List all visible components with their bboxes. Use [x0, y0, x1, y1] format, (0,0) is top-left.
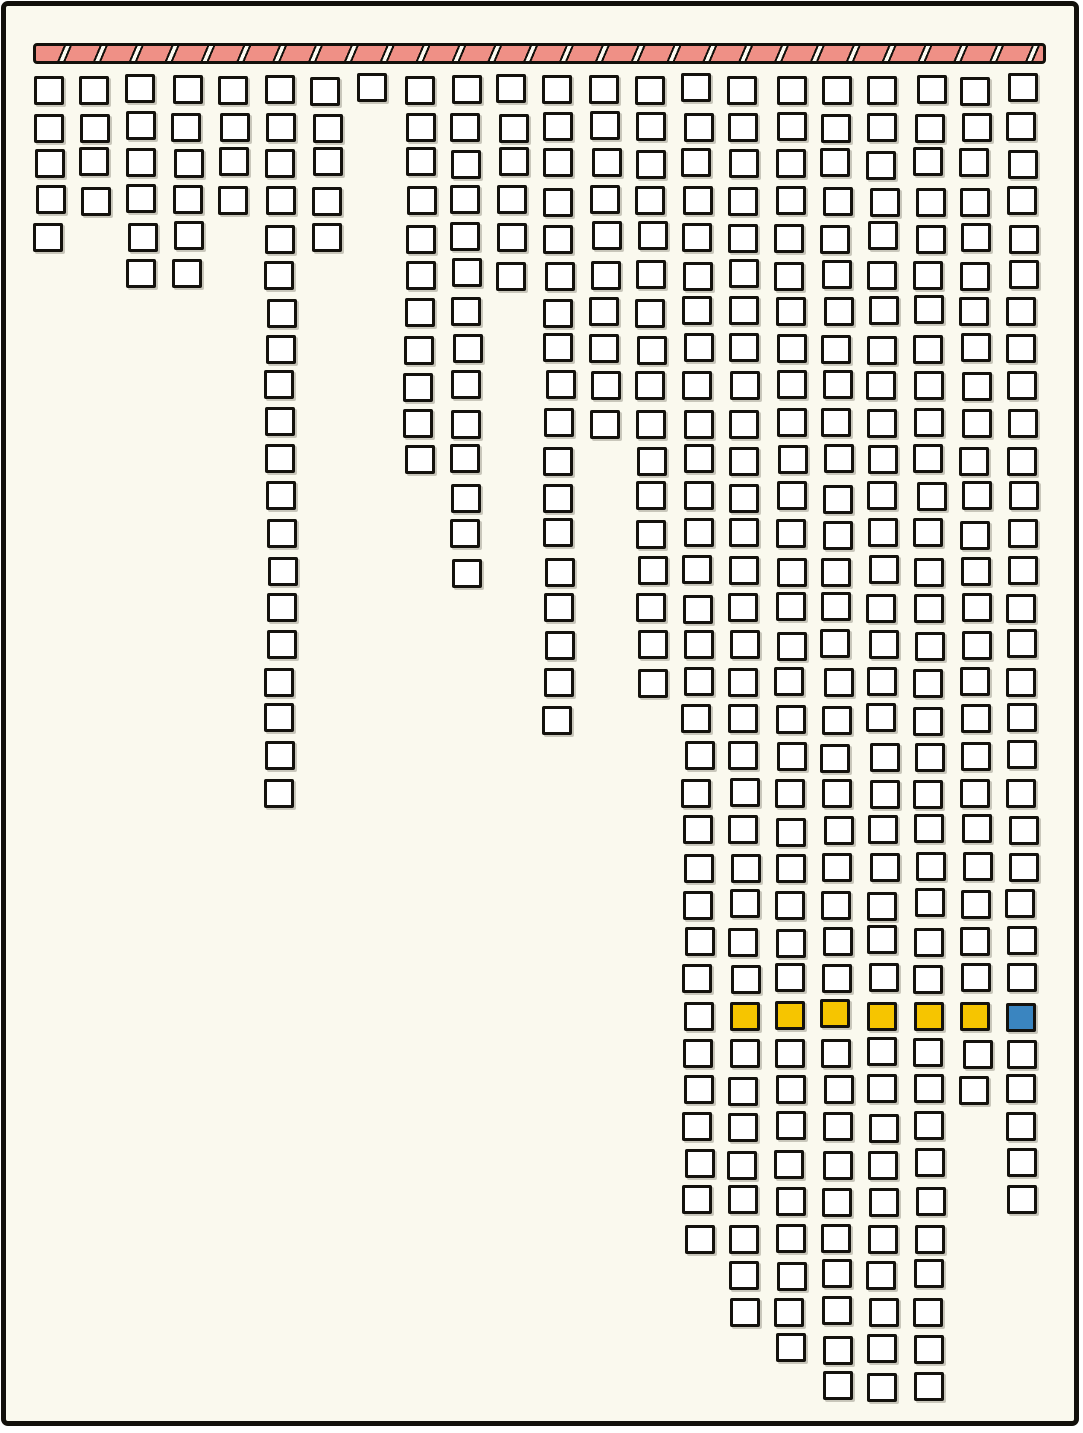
grid-cell: [867, 336, 897, 365]
grid-cell: [453, 334, 483, 363]
grid-cell: [1007, 186, 1037, 215]
grid-cell: [265, 225, 295, 254]
grid-cell: [264, 261, 294, 290]
grid-cell: [914, 1259, 944, 1288]
grid-cell: [824, 668, 854, 697]
grid-cell: [499, 147, 529, 176]
grid-cell: [823, 1336, 853, 1365]
grid-cell: [727, 76, 757, 105]
grid-cell: [776, 1187, 806, 1216]
grid-cell: [728, 815, 758, 844]
grid-cell: [452, 559, 482, 588]
grid-cell: [823, 485, 853, 514]
grid-cell: [684, 410, 714, 439]
grid-cell: [913, 707, 943, 736]
grid-cell: [821, 1039, 851, 1068]
grid-cell: [591, 371, 621, 400]
grid-cell: [960, 77, 990, 106]
grid-cell: [823, 370, 853, 399]
grid-cell: [960, 667, 990, 696]
grid-cell: [776, 1111, 806, 1140]
grid-cell: [682, 371, 712, 400]
grid-cell: [174, 221, 204, 250]
grid-cell: [822, 76, 852, 105]
grid-cell: [589, 75, 619, 104]
grid-cell: [821, 408, 851, 437]
grid-cell: [591, 261, 621, 290]
grid-cell: [728, 1113, 758, 1142]
grid-cell: [959, 447, 989, 476]
grid-cell: [313, 114, 343, 143]
grid-cell: [776, 705, 806, 734]
grid-cell: [685, 1225, 715, 1254]
grid-cell: [637, 447, 667, 476]
grid-cell: [635, 76, 665, 105]
grid-cell: [1006, 594, 1036, 623]
grid-cell: [824, 444, 854, 473]
grid-cell: [960, 262, 990, 291]
grid-cell: [1008, 519, 1038, 548]
grid-cell: [636, 593, 666, 622]
grid-cell: [683, 262, 713, 291]
grid-cell: [684, 481, 714, 510]
grid-cell: [406, 113, 436, 142]
grid-cell: [264, 370, 294, 399]
grid-cell: [1005, 889, 1035, 918]
grid-cell: [914, 1335, 944, 1364]
grid-cell: [777, 742, 807, 771]
grid-cell: [729, 556, 759, 585]
grid-cell: [822, 1259, 852, 1288]
grid-cell: [915, 888, 945, 917]
grid-cell: [728, 1077, 758, 1106]
grid-cell: [821, 335, 851, 364]
grid-cell: [407, 186, 437, 215]
grid-cell: [1009, 481, 1039, 510]
grid-cell: [776, 297, 806, 326]
grid-cell: [451, 410, 481, 439]
grid-cell: [310, 77, 340, 106]
grid-cell: [914, 928, 944, 957]
grid-cell: [403, 409, 433, 438]
grid-cell: [126, 111, 156, 140]
grid-cell: [1006, 1112, 1036, 1141]
grid-cell: [451, 150, 481, 179]
grid-cell: [869, 1188, 899, 1217]
grid-cell: [729, 447, 759, 476]
grid-cell: [730, 778, 760, 807]
grid-cell: [822, 779, 852, 808]
grid-cell: [820, 225, 850, 254]
grid-cell: [961, 223, 991, 252]
grid-cell: [728, 668, 758, 697]
grid-cell: [959, 297, 989, 326]
grid-cell: [731, 965, 761, 994]
grid-cell: [774, 1298, 804, 1327]
grid-cell: [916, 852, 946, 881]
grid-cell: [913, 518, 943, 547]
grid-cell: [776, 592, 806, 621]
grid-cell: [728, 1185, 758, 1214]
grid-cell: [778, 445, 808, 474]
grid-cell: [728, 928, 758, 957]
grid-cell: [638, 630, 668, 659]
grid-cell: [683, 186, 713, 215]
grid-cell: [35, 149, 65, 178]
grid-cell: [868, 815, 898, 844]
grid-cell: [774, 667, 804, 696]
grid-cell: [543, 447, 573, 476]
grid-cell: [868, 221, 898, 250]
grid-cell: [543, 112, 573, 141]
grid-cell: [728, 741, 758, 770]
grid-cell: [961, 742, 991, 771]
grid-cell: [543, 333, 573, 362]
grid-cell: [684, 854, 714, 883]
grid-cell: [1008, 556, 1038, 585]
grid-cell: [822, 964, 852, 993]
grid-cell: [867, 1074, 897, 1103]
grid-cell: [867, 261, 897, 290]
grid-cell: [636, 481, 666, 510]
grid-cell: [450, 113, 480, 142]
grid-cell: [218, 76, 248, 105]
grid-cell: [403, 373, 433, 402]
grid-cell: [776, 1333, 806, 1362]
grid-cell: [1008, 150, 1038, 179]
grid-cell: [777, 558, 807, 587]
grid-cell: [914, 594, 944, 623]
grid-cell: [915, 632, 945, 661]
grid-cell: [777, 481, 807, 510]
grid-cell: [917, 75, 947, 104]
grid-cell: [219, 147, 249, 176]
grid-cell: [1006, 334, 1036, 363]
grid-cell: [869, 630, 899, 659]
grid-cell: [776, 519, 806, 548]
grid-cell: [545, 631, 575, 660]
grid-cell: [79, 147, 109, 176]
grid-cell: [868, 1151, 898, 1180]
grid-cell: [962, 481, 992, 510]
grid-cell: [683, 815, 713, 844]
grid-cell: [406, 261, 436, 290]
highlight-cell-yellow: [867, 1002, 897, 1031]
grid-cell: [870, 780, 900, 809]
grid-cell: [544, 668, 574, 697]
grid-cell: [822, 260, 852, 289]
grid-cell: [685, 927, 715, 956]
grid-cell: [867, 1037, 897, 1066]
grid-cell: [866, 703, 896, 732]
grid-cell: [775, 963, 805, 992]
grid-cell: [869, 296, 899, 325]
grid-cell: [914, 814, 944, 843]
grid-cell: [682, 1185, 712, 1214]
grid-cell: [638, 669, 668, 698]
grid-cell: [777, 112, 807, 141]
grid-cell: [545, 558, 575, 587]
grid-cell: [545, 262, 575, 291]
grid-cell: [1007, 1185, 1037, 1214]
grid-cell: [451, 484, 481, 513]
grid-cell: [913, 1298, 943, 1327]
grid-cell: [913, 261, 943, 290]
grid-cell: [592, 221, 622, 250]
grid-cell: [543, 225, 573, 254]
grid-cell: [914, 1372, 944, 1401]
grid-cell: [823, 521, 853, 550]
grid-cell: [866, 151, 896, 180]
grid-cell: [451, 370, 481, 399]
grid-cell: [961, 333, 991, 362]
grid-cell: [775, 891, 805, 920]
grid-cell: [542, 706, 572, 735]
grid-cell: [960, 779, 990, 808]
striped-header-bar: [33, 43, 1046, 64]
grid-cell: [450, 444, 480, 473]
grid-cell: [823, 1151, 853, 1180]
grid-cell: [821, 592, 851, 621]
grid-cell: [776, 1224, 806, 1253]
grid-cell: [913, 335, 943, 364]
grid-cell: [868, 518, 898, 547]
grid-cell: [821, 558, 851, 587]
grid-cell: [729, 1261, 759, 1290]
grid-cell: [682, 296, 712, 325]
grid-cell: [728, 187, 758, 216]
grid-cell: [776, 818, 806, 847]
grid-cell: [1007, 926, 1037, 955]
highlight-cell-blue: [1006, 1003, 1036, 1032]
grid-cell: [867, 667, 897, 696]
grid-cell: [870, 743, 900, 772]
grid-cell: [916, 188, 946, 217]
grid-cell: [636, 112, 666, 141]
grid-cell: [913, 147, 943, 176]
grid-cell: [405, 445, 435, 474]
grid-cell: [867, 892, 897, 921]
grid-cell: [264, 668, 294, 697]
grid-cell: [729, 484, 759, 513]
grid-cell: [914, 1074, 944, 1103]
grid-cell: [820, 629, 850, 658]
grid-cell: [868, 445, 898, 474]
grid-cell: [961, 963, 991, 992]
grid-cell: [450, 519, 480, 548]
grid-cell: [1006, 112, 1036, 141]
grid-cell: [684, 113, 714, 142]
grid-cell: [450, 185, 480, 214]
grid-cell: [452, 75, 482, 104]
grid-cell: [684, 630, 714, 659]
grid-cell: [913, 1038, 943, 1067]
grid-cell: [915, 1148, 945, 1177]
grid-cell: [824, 297, 854, 326]
grid-cell: [1007, 371, 1037, 400]
grid-cell: [636, 410, 666, 439]
grid-cell: [313, 147, 343, 176]
grid-cell: [496, 74, 526, 103]
grid-cell: [775, 1039, 805, 1068]
grid-cell: [821, 114, 851, 143]
grid-cell: [1009, 853, 1039, 882]
grid-cell: [916, 1187, 946, 1216]
grid-cell: [727, 1151, 757, 1180]
grid-cell: [264, 703, 294, 732]
grid-cell: [730, 1298, 760, 1327]
grid-cell: [820, 744, 850, 773]
grid-cell: [543, 148, 573, 177]
grid-cell: [913, 780, 943, 809]
grid-cell: [590, 410, 620, 439]
grid-cell: [914, 295, 944, 324]
grid-cell: [820, 148, 850, 177]
grid-cell: [33, 223, 63, 252]
grid-cell: [866, 594, 896, 623]
grid-cell: [867, 76, 897, 105]
grid-cell: [681, 148, 711, 177]
grid-cell: [1007, 1148, 1037, 1177]
grid-cell: [868, 1225, 898, 1254]
grid-cell: [824, 816, 854, 845]
grid-cell: [635, 371, 665, 400]
grid-cell: [776, 929, 806, 958]
grid-cell: [866, 1261, 896, 1290]
grid-cell: [777, 76, 807, 105]
grid-cell: [636, 520, 666, 549]
grid-cell: [685, 741, 715, 770]
grid-cell: [822, 706, 852, 735]
grid-cell: [915, 743, 945, 772]
grid-cell: [959, 148, 989, 177]
grid-cell: [266, 335, 296, 364]
grid-cell: [220, 113, 250, 142]
grid-cell: [546, 370, 576, 399]
grid-cell: [590, 185, 620, 214]
grid-cell: [823, 1371, 853, 1400]
grid-cell: [730, 889, 760, 918]
grid-cell: [1006, 779, 1036, 808]
grid-cell: [823, 927, 853, 956]
grid-cell: [1006, 1074, 1036, 1103]
grid-cell: [405, 76, 435, 105]
grid-cell: [915, 1225, 945, 1254]
grid-cell: [683, 891, 713, 920]
grid-cell: [544, 593, 574, 622]
grid-cell: [821, 891, 851, 920]
grid-cell: [681, 73, 711, 102]
grid-cell: [867, 481, 897, 510]
grid-cell: [638, 221, 668, 250]
grid-cell: [267, 593, 297, 622]
grid-cell: [173, 185, 203, 214]
grid-cell: [126, 148, 156, 177]
grid-cell: [684, 667, 714, 696]
grid-cell: [637, 336, 667, 365]
grid-cell: [497, 185, 527, 214]
grid-cell: [450, 222, 480, 251]
grid-cell: [963, 1040, 993, 1069]
grid-cell: [128, 223, 158, 252]
highlight-cell-yellow: [914, 1002, 944, 1031]
grid-cell: [636, 260, 666, 289]
grid-cell: [126, 184, 156, 213]
grid-cell: [963, 852, 993, 881]
grid-cell: [728, 593, 758, 622]
grid-cell: [592, 148, 622, 177]
grid-cell: [775, 779, 805, 808]
grid-cell: [823, 1112, 853, 1141]
grid-cell: [543, 484, 573, 513]
grid-cell: [589, 334, 619, 363]
grid-cell: [1007, 447, 1037, 476]
grid-cell: [218, 186, 248, 215]
grid-cell: [728, 113, 758, 142]
grid-cell: [683, 1039, 713, 1068]
grid-cell: [730, 630, 760, 659]
highlight-cell-yellow: [775, 1001, 805, 1030]
grid-cell: [174, 149, 204, 178]
grid-cell: [171, 113, 201, 142]
grid-cell: [729, 296, 759, 325]
grid-cell: [1007, 629, 1037, 658]
grid-cell: [34, 114, 64, 143]
grid-cell: [914, 1111, 944, 1140]
grid-cell: [777, 632, 807, 661]
grid-cell: [543, 188, 573, 217]
grid-cell: [266, 113, 296, 142]
grid-cell: [1009, 816, 1039, 845]
grid-cell: [870, 188, 900, 217]
grid-cell: [1008, 409, 1038, 438]
grid-cell: [173, 75, 203, 104]
grid-cell: [962, 814, 992, 843]
grid-cell: [962, 372, 992, 401]
grid-cell: [36, 185, 66, 214]
grid-cell: [869, 1298, 899, 1327]
grid-cell: [451, 297, 481, 326]
grid-cell: [1007, 963, 1037, 992]
grid-cell: [452, 258, 482, 287]
grid-cell: [543, 518, 573, 547]
grid-cell: [961, 557, 991, 586]
grid-cell: [267, 299, 297, 328]
grid-cell: [914, 371, 944, 400]
grid-cell: [822, 853, 852, 882]
grid-cell: [962, 593, 992, 622]
grid-cell: [867, 113, 897, 142]
grid-cell: [867, 1334, 897, 1363]
grid-cell: [172, 259, 202, 288]
grid-cell: [962, 631, 992, 660]
grid-cell: [867, 925, 897, 954]
grid-cell: [869, 555, 899, 584]
grid-cell: [776, 1075, 806, 1104]
grid-cell: [405, 298, 435, 327]
grid-cell: [729, 410, 759, 439]
grid-cell: [126, 259, 156, 288]
grid-cell: [1006, 297, 1036, 326]
highlight-cell-yellow: [730, 1002, 760, 1031]
grid-cell: [776, 854, 806, 883]
grid-cell: [589, 297, 619, 326]
grid-cell: [312, 187, 342, 216]
grid-cell: [125, 74, 155, 103]
grid-cell: [497, 223, 527, 252]
grid-cell: [1009, 225, 1039, 254]
grid-cell: [34, 76, 64, 105]
